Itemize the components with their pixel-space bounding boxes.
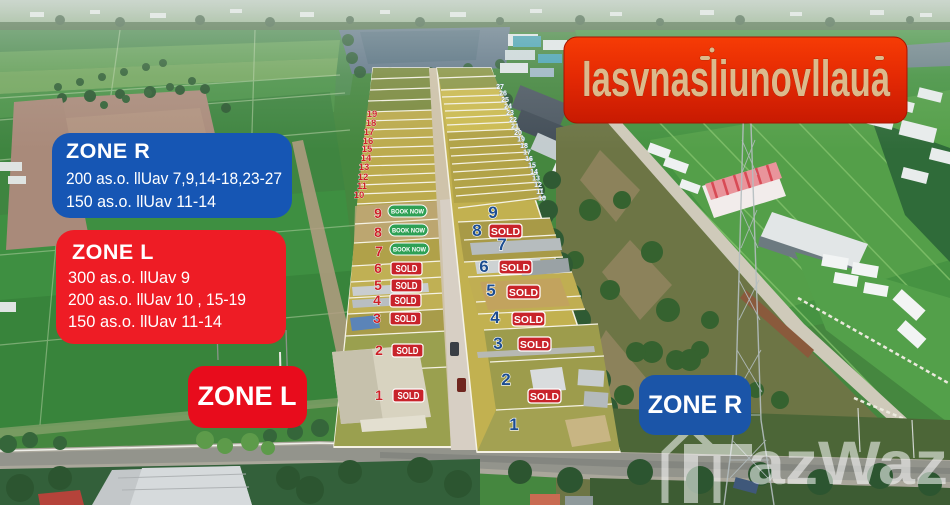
svg-text:SOLD: SOLD <box>491 226 521 238</box>
svg-text:9: 9 <box>488 203 497 222</box>
svg-text:SOLD: SOLD <box>514 314 544 326</box>
svg-text:SOLD: SOLD <box>396 264 418 275</box>
svg-text:6: 6 <box>479 257 488 276</box>
svg-text:9: 9 <box>374 205 382 221</box>
svg-text:ZONE L: ZONE L <box>72 240 154 264</box>
svg-text:4: 4 <box>373 292 381 308</box>
svg-text:3: 3 <box>373 310 381 326</box>
svg-text:4: 4 <box>490 308 500 327</box>
svg-text:BOOK NOW: BOOK NOW <box>393 247 427 254</box>
svg-text:ZONE L: ZONE L <box>198 381 297 411</box>
svg-text:azWaz: azWaz <box>748 429 948 497</box>
svg-text:SOLD: SOLD <box>509 287 539 299</box>
svg-text:SOLD: SOLD <box>530 391 560 403</box>
svg-text:SOLD: SOLD <box>398 391 420 402</box>
svg-text:7: 7 <box>375 243 383 259</box>
svg-text:ZONE R: ZONE R <box>648 391 742 419</box>
svg-text:1: 1 <box>509 415 518 434</box>
svg-text:BOOK NOW: BOOK NOW <box>392 228 426 235</box>
svg-text:150 as.o. llUav 11-14: 150 as.o. llUav 11-14 <box>68 313 222 331</box>
svg-text:5: 5 <box>374 277 382 293</box>
svg-text:8: 8 <box>472 221 481 240</box>
svg-text:SOLD: SOLD <box>395 296 417 307</box>
svg-text:150 as.o. llUav 11-14: 150 as.o. llUav 11-14 <box>66 193 216 211</box>
svg-text:SOLD: SOLD <box>397 346 419 357</box>
svg-text:2: 2 <box>501 370 510 389</box>
svg-text:300 as.o. llUav 9: 300 as.o. llUav 9 <box>68 269 190 287</box>
svg-text:5: 5 <box>486 281 495 300</box>
svg-text:SOLD: SOLD <box>396 281 418 292</box>
svg-text:SOLD: SOLD <box>501 262 531 274</box>
svg-text:10: 10 <box>538 195 546 202</box>
svg-text:200 as.o. llUav 10 , 15-19: 200 as.o. llUav 10 , 15-19 <box>68 291 246 309</box>
svg-text:ZONE R: ZONE R <box>66 139 150 163</box>
svg-text:3: 3 <box>493 334 502 353</box>
svg-text:1: 1 <box>375 387 383 403</box>
svg-text:10: 10 <box>354 190 365 201</box>
svg-text:BOOK NOW: BOOK NOW <box>391 209 425 216</box>
svg-text:SOLD: SOLD <box>395 314 417 325</box>
svg-text:SOLD: SOLD <box>520 339 550 351</box>
svg-text:6: 6 <box>374 260 382 276</box>
svg-text:200 as.o. llUav 7,9,14-18,23-2: 200 as.o. llUav 7,9,14-18,23-27 <box>66 170 282 188</box>
svg-text:8: 8 <box>374 224 382 240</box>
svg-text:2: 2 <box>375 342 383 358</box>
svg-text:Iasvnasliunovllaua: Iasvnasliunovllaua <box>582 50 890 107</box>
